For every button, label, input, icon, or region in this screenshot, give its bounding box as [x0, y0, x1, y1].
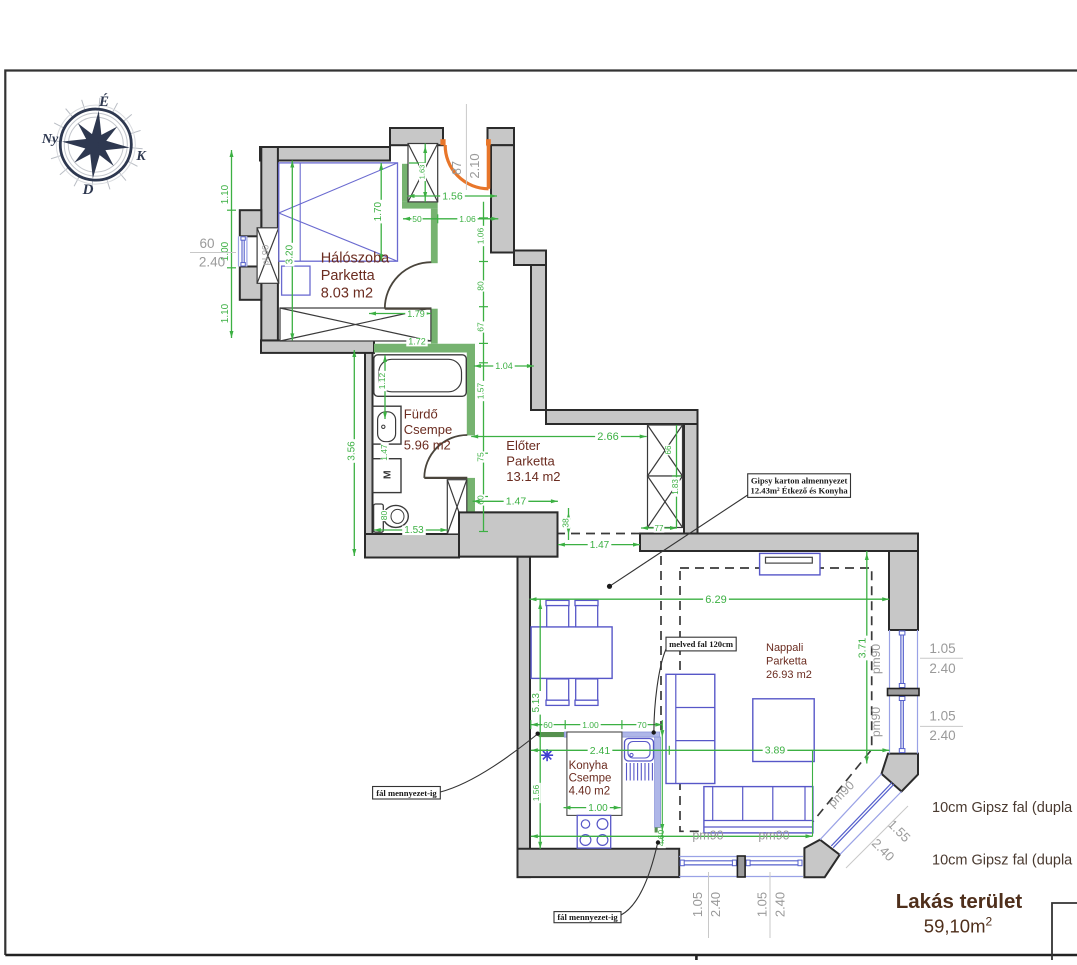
svg-text:pm90: pm90 — [869, 707, 883, 737]
svg-text:2.40: 2.40 — [773, 892, 788, 917]
svg-text:1.47: 1.47 — [379, 444, 389, 461]
svg-text:70: 70 — [637, 720, 647, 730]
svg-text:3.71: 3.71 — [857, 638, 869, 659]
svg-text:Előter: Előter — [506, 438, 541, 453]
svg-text:1.06: 1.06 — [476, 227, 486, 244]
svg-text:1.47: 1.47 — [506, 496, 527, 508]
svg-text:1.05: 1.05 — [929, 709, 955, 724]
svg-text:2.41: 2.41 — [590, 745, 611, 757]
svg-text:80: 80 — [476, 281, 486, 291]
svg-text:60: 60 — [476, 495, 486, 505]
svg-text:1.05: 1.05 — [690, 892, 705, 917]
svg-text:Parketta: Parketta — [321, 268, 376, 284]
svg-text:1.04: 1.04 — [495, 361, 513, 371]
svg-text:1.00: 1.00 — [582, 720, 599, 730]
svg-text:1.79: 1.79 — [407, 309, 425, 319]
svg-text:2.66: 2.66 — [597, 431, 618, 443]
svg-text:1.10: 1.10 — [220, 184, 231, 204]
svg-text:1.53: 1.53 — [404, 525, 424, 536]
svg-text:2.40: 2.40 — [708, 892, 723, 917]
svg-text:D: D — [82, 182, 94, 198]
svg-text:fál mennyezet-ig: fál mennyezet-ig — [376, 788, 437, 798]
svg-text:5.96 m2: 5.96 m2 — [404, 438, 451, 453]
svg-text:66: 66 — [664, 445, 673, 454]
svg-text:26.93 m2: 26.93 m2 — [766, 669, 812, 681]
svg-text:6.29: 6.29 — [705, 594, 726, 606]
svg-text:75: 75 — [476, 452, 486, 462]
svg-text:12.43m² Étkező és Konyha: 12.43m² Étkező és Konyha — [751, 486, 849, 496]
svg-text:3.56: 3.56 — [346, 441, 357, 461]
svg-text:Hálószoba: Hálószoba — [321, 250, 390, 266]
svg-text:1.47: 1.47 — [590, 540, 610, 551]
svg-text:M: M — [382, 470, 394, 479]
svg-text:É: É — [98, 93, 109, 110]
svg-text:1.06: 1.06 — [459, 214, 476, 224]
svg-text:80: 80 — [379, 511, 389, 521]
svg-text:pm90: pm90 — [692, 829, 723, 843]
svg-text:1.05: 1.05 — [929, 641, 955, 656]
svg-text:Konyha: Konyha — [569, 760, 609, 772]
svg-text:Csempe: Csempe — [404, 422, 452, 437]
svg-text:8.03 m2: 8.03 m2 — [321, 285, 373, 301]
svg-text:1.12: 1.12 — [377, 372, 387, 389]
svg-text:1.10: 1.10 — [220, 303, 231, 323]
svg-text:Nappali: Nappali — [766, 642, 803, 654]
svg-text:1.05: 1.05 — [755, 892, 770, 917]
svg-text:Gipsy karton almennyezet: Gipsy karton almennyezet — [751, 476, 848, 486]
svg-text:67: 67 — [476, 322, 486, 332]
svg-text:Ny: Ny — [41, 132, 59, 147]
svg-text:Fürdő: Fürdő — [404, 407, 438, 422]
svg-text:1.63: 1.63 — [418, 165, 427, 180]
svg-text:10cm Gipsz fal (dupla: 10cm Gipsz fal (dupla — [932, 800, 1073, 816]
svg-text:3.20: 3.20 — [284, 244, 295, 264]
svg-text:Csempe: Csempe — [569, 773, 612, 785]
svg-text:5.13: 5.13 — [531, 693, 542, 713]
svg-text:1.56: 1.56 — [531, 784, 541, 801]
svg-text:1.83: 1.83 — [671, 479, 680, 495]
svg-text:Parketta: Parketta — [506, 454, 555, 469]
svg-text:1.72: 1.72 — [408, 337, 426, 347]
svg-text:60: 60 — [543, 720, 553, 730]
svg-text:4.40 m2: 4.40 m2 — [569, 785, 611, 797]
svg-text:60: 60 — [199, 236, 214, 251]
svg-text:1.70: 1.70 — [373, 201, 384, 221]
svg-text:87: 87 — [450, 161, 464, 175]
svg-text:Parketta: Parketta — [766, 655, 808, 667]
svg-text:2.10: 2.10 — [467, 153, 482, 178]
svg-text:K: K — [135, 149, 147, 164]
svg-text:2.40: 2.40 — [929, 728, 955, 743]
svg-text:pm90: pm90 — [758, 829, 789, 843]
svg-text:1.00: 1.00 — [588, 803, 608, 814]
svg-text:13.14 m2: 13.14 m2 — [506, 469, 560, 484]
svg-text:pm90: pm90 — [869, 644, 883, 674]
svg-text:1.57: 1.57 — [476, 382, 486, 399]
svg-text:melved fal 120cm: melved fal 120cm — [669, 639, 734, 649]
svg-text:10cm Gipsz fal (dupla: 10cm Gipsz fal (dupla — [932, 853, 1073, 869]
svg-text:pl.90: pl.90 — [261, 245, 272, 266]
svg-text:2.40: 2.40 — [929, 661, 955, 676]
svg-text:59,10m2: 59,10m2 — [924, 915, 993, 937]
svg-text:2.40: 2.40 — [199, 255, 225, 270]
svg-text:fál mennyezet-ig: fál mennyezet-ig — [557, 912, 618, 922]
svg-text:38: 38 — [561, 518, 571, 528]
svg-text:50: 50 — [412, 214, 422, 224]
svg-text:3.89: 3.89 — [765, 745, 786, 757]
svg-text:Lakás terület: Lakás terület — [896, 890, 1023, 913]
svg-text:1.56: 1.56 — [442, 190, 463, 202]
svg-text:77: 77 — [655, 524, 664, 533]
